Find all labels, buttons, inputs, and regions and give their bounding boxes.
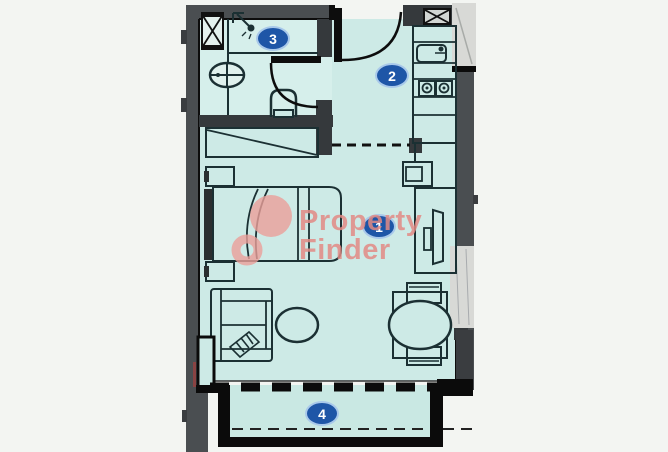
room-marker-4-number: 4 (318, 406, 326, 422)
bottom-left-wall-block (186, 383, 208, 452)
floorplan-image: 1 2 3 4 Property Finder (0, 0, 668, 452)
left-wall (186, 5, 199, 385)
room-marker-3: 3 (256, 26, 290, 51)
room-marker-2-number: 2 (388, 68, 396, 84)
room-marker-3-number: 3 (269, 31, 277, 47)
floorplan-drawing (0, 0, 668, 452)
balcony-wall-bottom (218, 437, 443, 447)
room-marker-2: 2 (375, 63, 409, 88)
shaft-x-icon (202, 13, 223, 49)
left-wall-nub (181, 98, 187, 112)
room-marker-4: 4 (305, 401, 339, 426)
window-red-accent (193, 362, 196, 387)
left-window-frame (198, 337, 214, 387)
left-wall-nub (182, 410, 187, 422)
bathroom-bottom-wall (199, 115, 333, 127)
room-marker-1: 1 (362, 214, 396, 239)
vent-x-icon (424, 9, 450, 24)
left-wall-nub (181, 30, 187, 44)
room-marker-1-number: 1 (375, 219, 383, 235)
bathroom-right-wall-upper (317, 19, 332, 57)
washbasin-icon (210, 63, 244, 87)
right-wall-bottom (456, 330, 473, 387)
right-wall-nub (473, 195, 478, 204)
right-window-panel (450, 246, 474, 340)
